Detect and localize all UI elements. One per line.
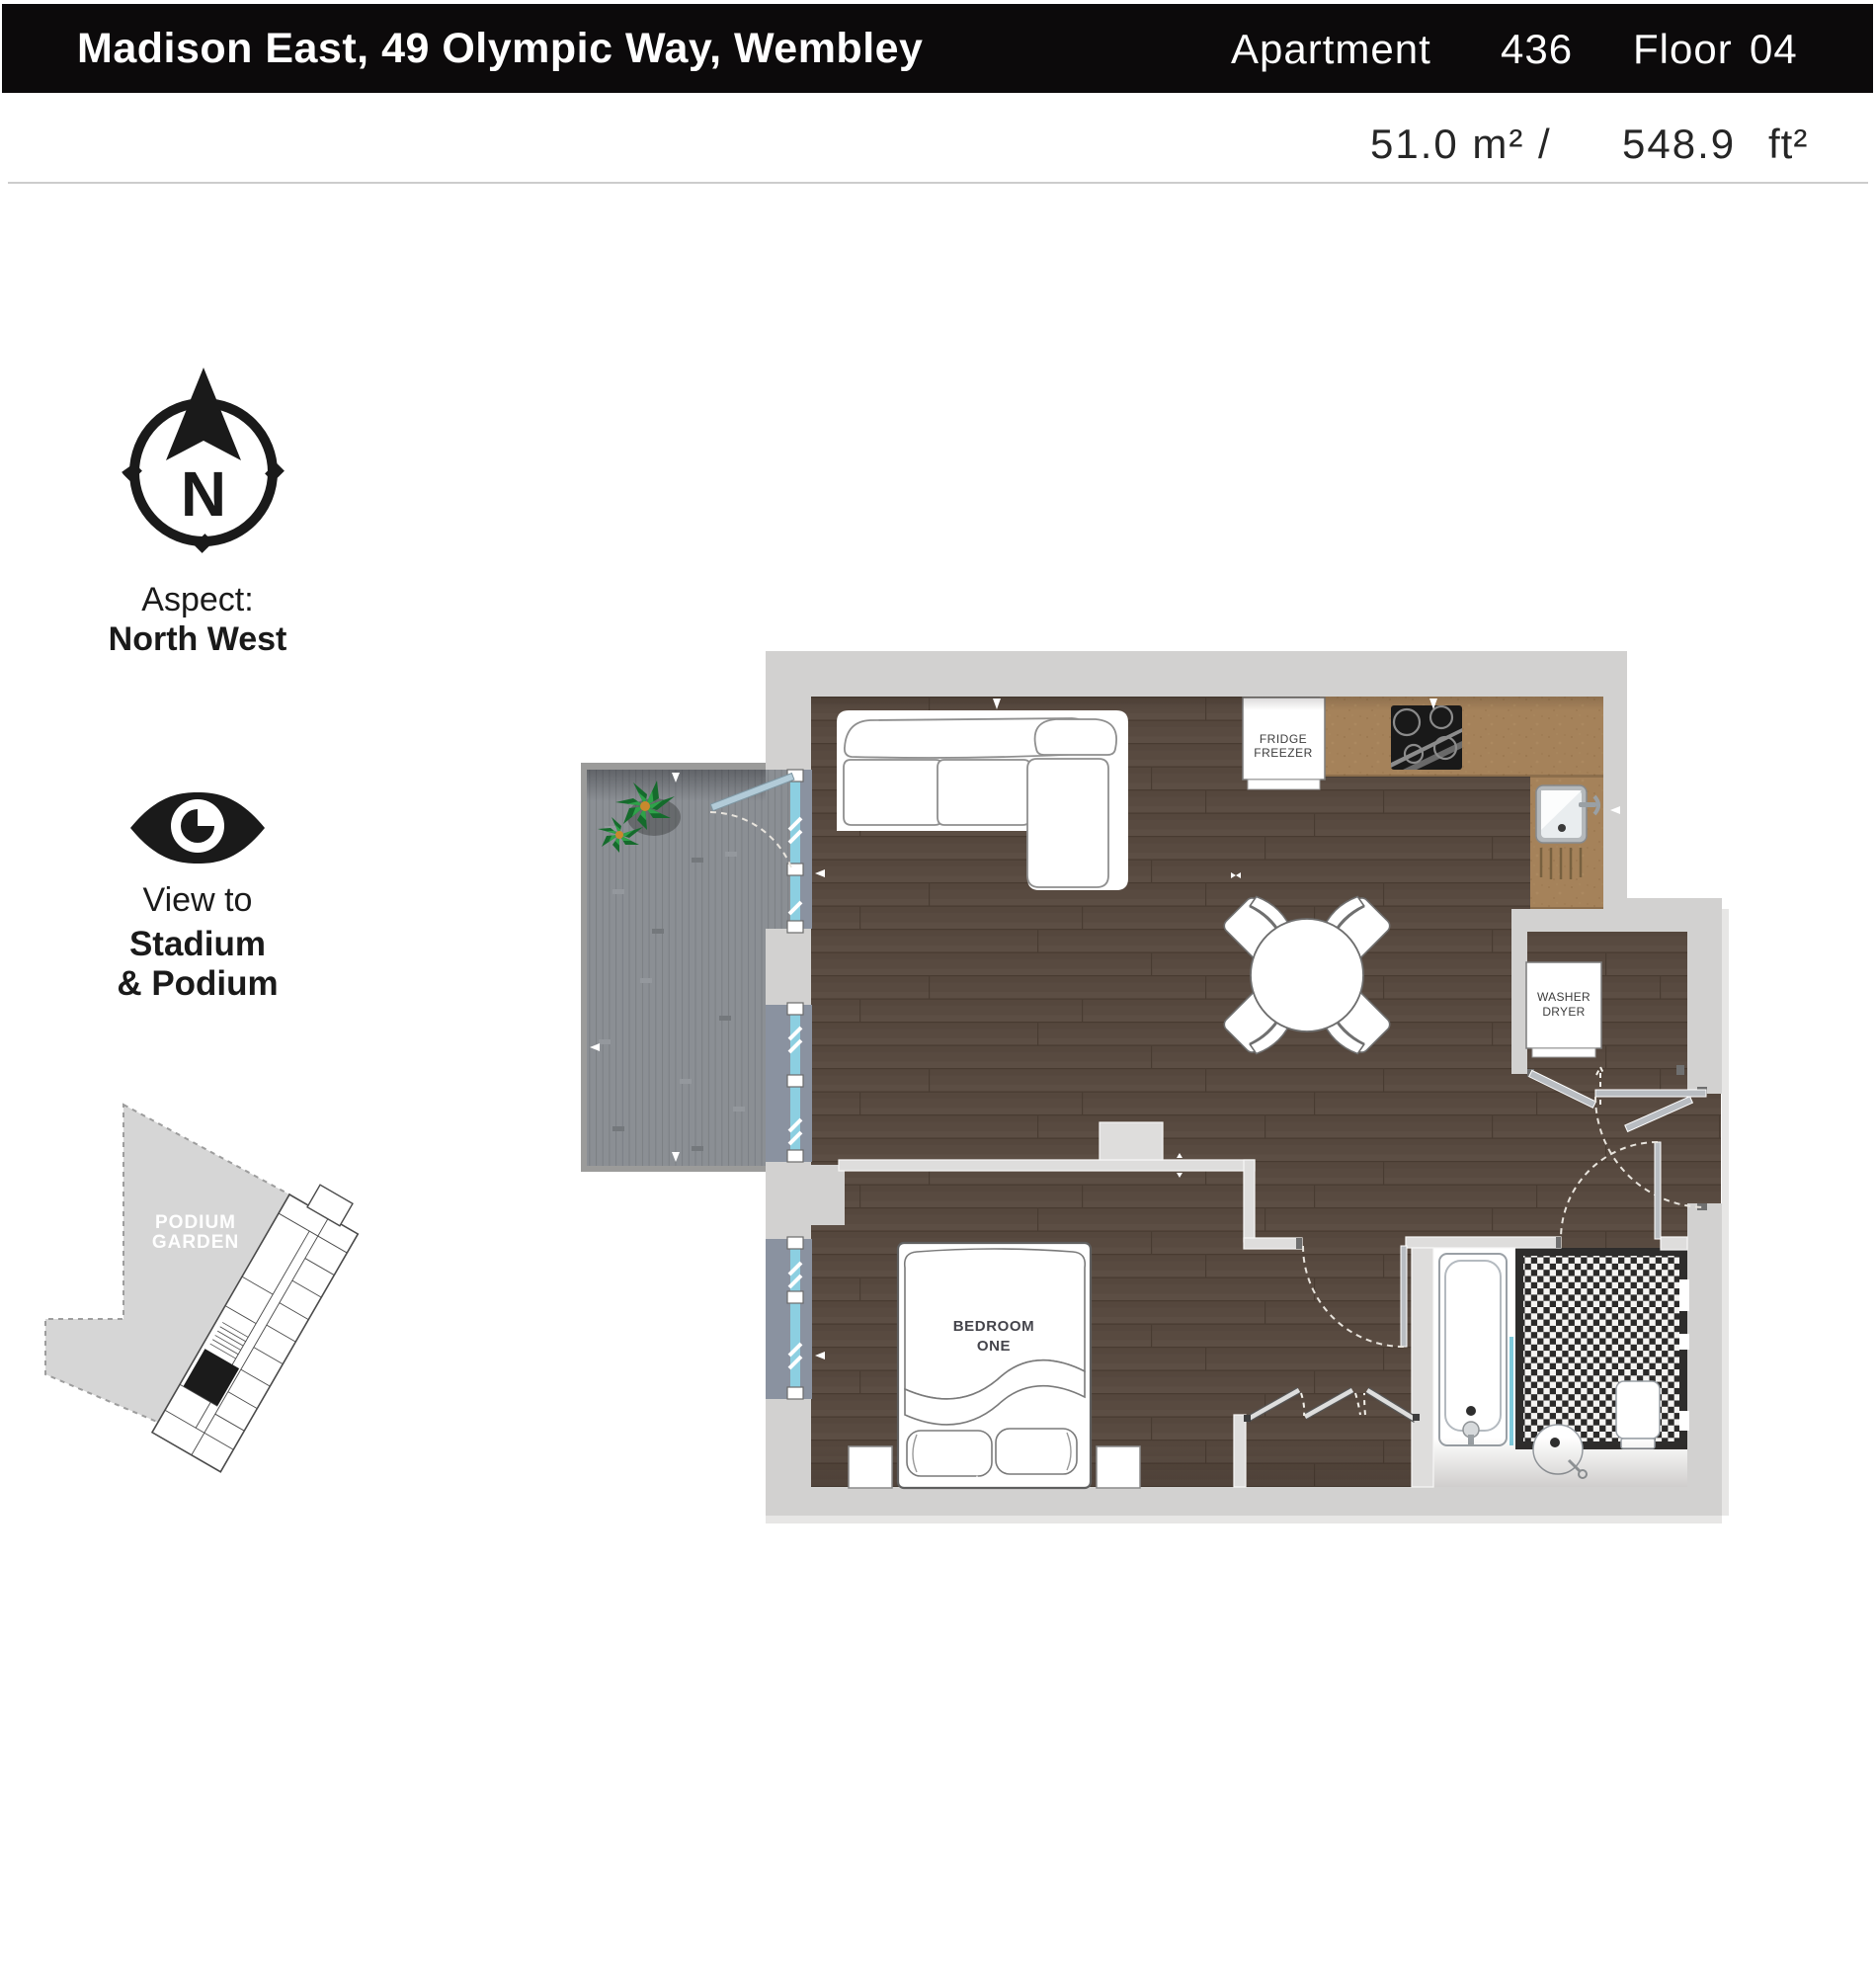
svg-text:BEDROOM: BEDROOM (953, 1318, 1035, 1335)
svg-text:WASHER: WASHER (1537, 990, 1591, 1004)
svg-text:FRIDGE: FRIDGE (1260, 732, 1307, 746)
svg-text:DRYER: DRYER (1542, 1005, 1585, 1019)
svg-text:ONE: ONE (977, 1338, 1011, 1355)
svg-text:FREEZER: FREEZER (1254, 746, 1313, 760)
